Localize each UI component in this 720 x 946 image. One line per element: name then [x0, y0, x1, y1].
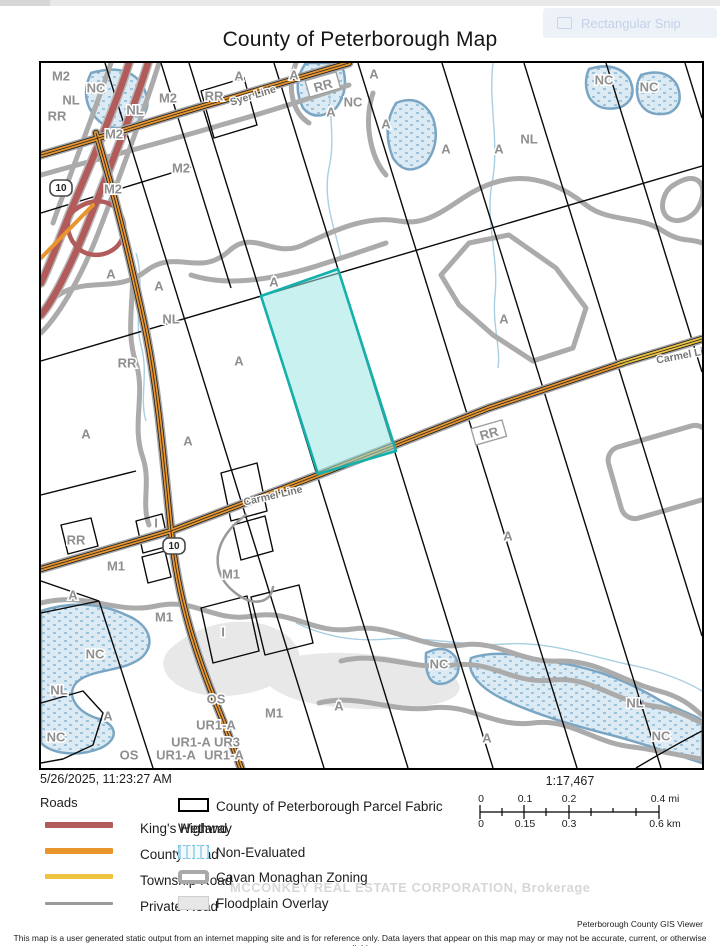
legend-swatch-private-road: [45, 902, 113, 905]
zone-label: A: [289, 68, 299, 83]
zone-label: NC: [87, 81, 106, 96]
zone-label: A: [441, 142, 451, 157]
road-name-label: Carmel Line: [242, 483, 303, 508]
zone-label: UR1-A: [196, 718, 236, 733]
map-timestamp: 5/26/2025, 11:23:27 AM: [40, 772, 172, 786]
top-strip-segment: [0, 0, 50, 6]
zone-label: NC: [430, 657, 449, 672]
zone-label: M2: [159, 91, 177, 106]
zone-label: A: [234, 69, 244, 84]
zone-label: RR: [118, 356, 137, 371]
zone-label: A: [68, 588, 78, 603]
map-svg: M2NCNLRRM2RRNLM2M2M2AAANCAANCNCAANLAANLA…: [41, 63, 702, 768]
legend-swatch-floodplain: [178, 896, 209, 910]
zone-label: I: [221, 625, 225, 640]
zone-label: NL: [126, 103, 143, 118]
zone-label: NL: [162, 312, 179, 327]
zone-label: A: [183, 434, 193, 449]
legend-label-floodplain: Floodplain Overlay: [216, 896, 329, 911]
brokerage-watermark: MCCONKEY REAL ESTATE CORPORATION, Broker…: [230, 880, 591, 895]
zone-label: OS: [120, 748, 139, 763]
zone-label: A: [106, 267, 116, 282]
zone-label: A: [81, 427, 91, 442]
zone-label: A: [369, 67, 379, 82]
zone-label: UR1-A: [156, 748, 196, 763]
zone-label: M1: [155, 610, 173, 625]
zone-label: A: [154, 279, 164, 294]
zone-label: A: [326, 105, 336, 120]
zone-label: NC: [344, 95, 363, 110]
zone-label: NC: [47, 730, 66, 745]
zone-label: UR1-A: [204, 748, 244, 763]
legend-label-parcel-fabric: County of Peterborough Parcel Fabric: [216, 799, 443, 814]
legend-swatch-parcel-fabric: [178, 798, 209, 812]
zone-label: NL: [62, 93, 79, 108]
highway-shield-number: 10: [168, 541, 180, 552]
zone-label: M2: [105, 127, 123, 142]
zone-label: NC: [640, 80, 659, 95]
legend-label-non-evaluated: Non-Evaluated: [216, 845, 305, 860]
zone-label: M2: [52, 69, 70, 84]
zone-label: A: [334, 699, 344, 714]
legend-swatch-cavan-zoning: [178, 870, 209, 884]
zone-label: NL: [50, 683, 67, 698]
legend-swatch-township-road: [45, 874, 113, 879]
zone-label: NL: [520, 132, 537, 147]
legend-roads-heading: Roads: [40, 795, 78, 810]
scale-bar: [479, 803, 661, 821]
highlighted-parcel[interactable]: [261, 269, 396, 474]
gis-viewer-credit: Peterborough County GIS Viewer: [577, 919, 703, 929]
zone-label: RR: [48, 109, 67, 124]
page-title: County of Peterborough Map: [0, 28, 720, 52]
zone-label: M2: [104, 182, 122, 197]
zone-label: A: [494, 142, 504, 157]
zone-label: A: [381, 117, 391, 132]
scale-ratio: 1:17,467: [479, 774, 661, 788]
zone-label: RR: [205, 89, 224, 104]
map-disclaimer: This map is a user generated static outp…: [0, 933, 720, 946]
zone-label: A: [234, 354, 244, 369]
zone-label: A: [269, 275, 279, 290]
highway-shield-number: 10: [55, 183, 67, 194]
zone-label: NC: [595, 73, 614, 88]
zone-label: NC: [652, 729, 671, 744]
zone-label: OS: [207, 692, 226, 707]
zone-label: A: [482, 731, 492, 746]
zone-label: RR: [67, 533, 86, 548]
screen: Rectangular Snip County of Peterborough …: [0, 0, 720, 946]
zone-label: A: [499, 312, 509, 327]
zone-label: NL: [626, 696, 643, 711]
zone-label: M1: [107, 559, 125, 574]
zone-label: I: [154, 516, 158, 531]
legend-swatch-non-evaluated: [178, 845, 209, 859]
zone-label: M1: [222, 567, 240, 582]
zone-label: M2: [172, 161, 190, 176]
zone-label: NC: [86, 647, 105, 662]
zone-label: A: [103, 709, 113, 724]
legend-swatch-county-road: [45, 848, 113, 854]
zone-label: A: [503, 529, 513, 544]
legend-swatch-kings-highway: [45, 822, 113, 828]
legend-wetland-heading: Wetland: [178, 821, 227, 836]
map-canvas[interactable]: M2NCNLRRM2RRNLM2M2M2AAANCAANCNCAANLAANLA…: [39, 61, 704, 770]
zone-label: M1: [265, 706, 283, 721]
browser-top-strip: [0, 0, 720, 6]
